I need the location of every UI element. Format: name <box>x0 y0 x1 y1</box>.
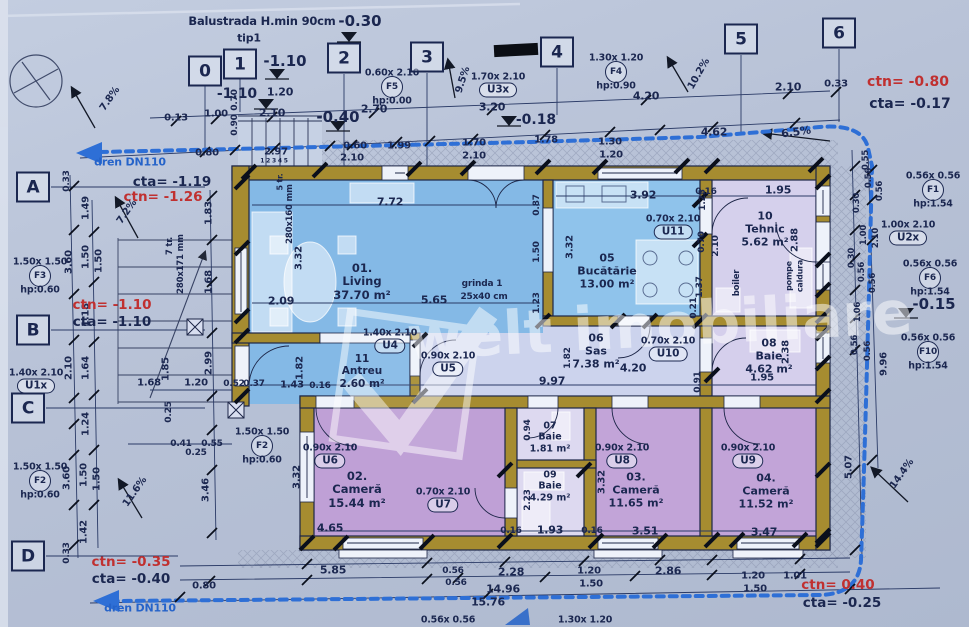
dim-label: 1.20 <box>577 566 601 577</box>
dim-label: 0.16 <box>581 526 602 536</box>
door-tag: U11 <box>654 225 693 240</box>
dim-label: 0.21 <box>689 297 699 318</box>
dim-label: 2.10 <box>462 151 486 162</box>
window-hp-label: hp:0.60 <box>20 285 59 296</box>
dim-label: 1.83 <box>204 201 215 225</box>
note-label: 280x160 mm <box>285 184 295 244</box>
slope-label: 7.2% <box>115 198 139 226</box>
room-number: 01. <box>352 261 372 275</box>
grid-column-marker: 6 <box>822 18 856 49</box>
dim-label: 5.85 <box>320 564 346 577</box>
level-label: cta= -0.40 <box>92 571 171 587</box>
dim-label: 4.65 <box>317 522 343 535</box>
dim-label: 1.00 <box>204 109 228 120</box>
door-size-label: 0.90x 2.10 <box>303 443 357 454</box>
level-label: -0.18 <box>516 112 556 128</box>
dim-label: 0.16 <box>309 381 330 391</box>
dim-label: 0.56 <box>857 262 867 282</box>
dim-label: 2.09 <box>268 295 294 308</box>
dim-label: 0.33 <box>824 79 848 90</box>
dim-label: 0.56 <box>863 341 873 361</box>
dim-label: 0.56 <box>875 181 885 201</box>
dim-label: 0.33 <box>62 542 72 563</box>
dim-label: 7.72 <box>377 196 403 209</box>
dim-label: 1.99 <box>387 141 411 152</box>
grid-column-marker: 4 <box>540 37 574 68</box>
dim-label: 0.56 <box>850 335 860 355</box>
room-number: 07 <box>543 420 556 431</box>
level-label: -0.15 <box>912 295 955 313</box>
dim-label: 1.78 <box>534 135 558 146</box>
dim-label: 1.24 <box>81 412 92 436</box>
slope-label: 11.6% <box>121 475 149 509</box>
dim-label: 2.10 <box>871 228 881 248</box>
dim-label: 1.50 <box>92 467 103 491</box>
door-size-label: 0.70x 2.10 <box>646 214 700 225</box>
level-label: cta= -0.25 <box>803 595 882 611</box>
slope-label: 6.5% <box>780 123 811 140</box>
slope-label: 9.5% <box>454 65 473 94</box>
room-number: 09 <box>543 469 556 480</box>
dim-label: 2.10 <box>259 107 285 120</box>
slope-label: 10.2% <box>686 57 712 92</box>
dim-label: 0.33 <box>62 170 72 191</box>
dim-label: 1.37 <box>695 276 705 297</box>
dim-label: 0.16 <box>500 526 521 536</box>
door-size-label: 1.70x 2.10 <box>471 72 525 83</box>
dim-label: 1.95 <box>765 184 791 197</box>
dim-label: 1.68 <box>204 270 215 294</box>
room-name: Living <box>342 274 381 288</box>
dim-label: 2.10 <box>711 235 721 256</box>
dim-label: 1.50 <box>743 584 767 595</box>
room-name: Sas <box>585 345 607 358</box>
dim-label: 1.82 <box>295 356 306 380</box>
window-hp-label: hp:0.60 <box>242 455 281 466</box>
dim-label: 3.51 <box>632 525 658 538</box>
room-number: 08 <box>761 337 776 350</box>
dim-label: 3.46 <box>201 478 212 502</box>
dim-label: 4.62 <box>701 126 727 139</box>
dim-label: 0.13 <box>164 113 188 124</box>
dim-label: 4.20 <box>620 362 646 375</box>
note-label: 5 tr. <box>276 173 285 190</box>
room-number: 05 <box>599 252 614 265</box>
room-area: 11.65 m² <box>609 497 664 510</box>
dim-label: 0.56 <box>868 273 878 293</box>
window-hp-label: hp:1.54 <box>913 199 952 210</box>
level-label: -1.10 <box>217 86 257 102</box>
dim-label: 1.68 <box>137 378 161 389</box>
door-tag: U4 <box>374 339 405 354</box>
dim-label: 0.90 <box>230 114 240 135</box>
room-name: Cameră <box>742 485 789 498</box>
room-area: 1.81 m² <box>530 443 571 454</box>
dim-label: 0.56 <box>864 168 874 188</box>
room-name: Bucătărie <box>577 265 637 278</box>
grid-row-marker: C <box>11 393 45 424</box>
dim-label: 0.80 <box>195 148 219 159</box>
door-tag: U9 <box>732 454 763 469</box>
dim-label: 1.50 <box>81 245 92 269</box>
note-label: dren DN110 <box>104 602 176 615</box>
grid-row-marker: B <box>16 315 50 346</box>
door-size-label: 1.00x 2.10 <box>881 220 935 231</box>
room-number: 10 <box>757 210 772 223</box>
note-label: 1 2 3 4 5 <box>260 158 287 165</box>
dim-label: 0.30 <box>847 248 857 268</box>
grid-column-marker: 2 <box>327 43 361 74</box>
dim-label: 1.85 <box>161 357 172 381</box>
dim-label: 1.20 <box>599 150 623 161</box>
dim-label: 1.20 <box>184 378 208 389</box>
annotation-layer: 0.131.001.202.102.700.802.970.602.101.99… <box>0 0 969 627</box>
room-name: Antreu <box>342 365 382 377</box>
note-label: boiler <box>732 270 742 297</box>
window-hp-label: hp:0.60 <box>20 490 59 501</box>
room-number: 06 <box>588 332 603 345</box>
room-name: Tehnic <box>745 223 784 236</box>
room-area: 4.29 m² <box>530 492 571 503</box>
door-tag: U5 <box>432 362 463 377</box>
dim-label: 14.96 <box>486 583 520 596</box>
room-name: Baie <box>755 350 782 363</box>
note-label: dren DN110 <box>94 156 166 169</box>
note-label: 280x171 mm <box>176 234 186 294</box>
window-hp-label: hp:1.54 <box>910 287 949 298</box>
dim-label: 2.10 <box>64 356 75 380</box>
room-number: 03. <box>626 471 646 484</box>
level-label: cta= -1.10 <box>73 314 152 330</box>
dim-label: 5.65 <box>421 294 447 307</box>
dim-label: 1.64 <box>81 356 92 380</box>
slope-label: 7.8% <box>98 85 122 113</box>
dim-label: 0.60 <box>343 141 367 152</box>
door-tag: U2x <box>889 231 927 246</box>
dim-label: 1.30 <box>598 137 622 148</box>
dim-label: 4.20 <box>633 90 659 103</box>
dim-label: 1.50 <box>532 241 542 262</box>
level-label: cta= -1.19 <box>133 174 212 190</box>
room-area: 11.52 m² <box>739 498 794 511</box>
dim-label: 0.87 <box>532 194 542 215</box>
grid-row-marker: A <box>16 172 50 203</box>
room-number: 11 <box>355 353 370 365</box>
grid-column-marker: 1 <box>223 49 257 80</box>
dim-label: 1.49 <box>81 196 92 220</box>
dim-label: 1.50 <box>94 249 105 273</box>
door-size-label: 0.70x 2.10 <box>416 487 470 498</box>
dim-label: 0.37 <box>243 379 264 389</box>
room-area: 13.00 m² <box>580 278 635 291</box>
dim-label: 1.42 <box>79 520 90 544</box>
door-tag: U3x <box>479 83 517 98</box>
grid-column-marker: 3 <box>410 42 444 73</box>
level-label: ctn= -1.10 <box>73 297 152 313</box>
dim-label: 2.10 <box>775 81 801 94</box>
room-area: 4.62 m² <box>745 363 792 376</box>
dim-label: 3.20 <box>479 101 505 114</box>
note-label: 7 tr. <box>165 237 175 255</box>
dim-label: 1.70 <box>462 138 486 149</box>
dim-label: 3.32 <box>597 470 608 494</box>
dim-label: 3.32 <box>294 246 305 270</box>
door-tag: U10 <box>649 347 688 362</box>
floor-plan-page: welt imobiliare 0.131.001.202.102.700.80… <box>0 0 969 627</box>
dim-label: 0.80 <box>192 581 216 592</box>
dim-label: 1.50 <box>79 463 90 487</box>
level-label: ctn= -0.80 <box>867 74 949 90</box>
dim-label: 0.94 <box>523 419 533 440</box>
grid-row-marker: D <box>11 541 45 572</box>
slope-label: 14.4% <box>888 457 916 491</box>
room-area: 15.44 m² <box>328 496 385 510</box>
dim-label: 2.99 <box>204 351 215 375</box>
dim-label: 0.30 <box>852 193 862 213</box>
level-label: ctn= -0.35 <box>92 554 171 570</box>
room-area: 2.60 m² <box>339 378 384 390</box>
room-name: Cameră <box>332 482 381 496</box>
door-tag: U6 <box>314 454 345 469</box>
dim-label: 1.23 <box>532 292 542 313</box>
door-size-label: 1.40x 2.10 <box>9 368 63 379</box>
door-size-label: 0.90x 2.10 <box>421 351 475 362</box>
room-name: Baie <box>538 481 561 492</box>
door-size-label: 1.40x 2.10 <box>363 328 417 339</box>
window-hp-label: hp:0.90 <box>596 81 635 92</box>
door-tag: U8 <box>606 454 637 469</box>
room-number: 02. <box>347 469 367 483</box>
window-hp-label: hp:0.00 <box>372 96 411 107</box>
room-name: Cameră <box>612 484 659 497</box>
dim-label: 3.47 <box>751 526 777 539</box>
room-name: Baie <box>538 432 561 443</box>
dim-label: 2.86 <box>655 565 681 578</box>
dim-label: 0.70 <box>697 231 707 252</box>
door-size-label: 0.90x 2.10 <box>595 443 649 454</box>
dim-label: 15.76 <box>471 596 505 609</box>
grid-column-marker: 0 <box>188 56 222 87</box>
level-label: -0.40 <box>316 108 359 126</box>
dim-label: 1.25 <box>698 189 708 210</box>
dim-label: 1.50 <box>579 579 603 590</box>
door-size-label: 0.70x 2.10 <box>641 336 695 347</box>
level-label: ctn= 0.40 <box>801 577 874 593</box>
dim-label: 2.97 <box>264 147 288 158</box>
note-label: pompe <box>785 261 794 291</box>
dim-label: 1.93 <box>537 524 563 537</box>
dim-label: 1.20 <box>267 86 293 99</box>
note-label: grinda 1 <box>462 279 503 289</box>
dim-label: 0.56 <box>442 566 463 576</box>
dim-label: 1.30x 1.20 <box>558 615 612 626</box>
dim-label: 0.56 <box>445 578 466 588</box>
dim-label: 0.25 <box>164 401 174 422</box>
note-label: Balustrada H.min 90cm <box>188 14 335 28</box>
dim-label: 2.10 <box>340 153 364 164</box>
room-number: 04. <box>756 472 776 485</box>
dim-label: 0.25 <box>185 448 206 458</box>
level-label: -0.30 <box>338 12 381 30</box>
dim-label: 9.96 <box>879 352 890 376</box>
door-tag: U7 <box>427 498 458 513</box>
dim-label: 9.97 <box>539 375 565 388</box>
window-hp-label: hp:1.54 <box>908 361 947 372</box>
door-size-label: 0.90x 2.10 <box>721 443 775 454</box>
dim-label: 2.28 <box>498 566 524 579</box>
room-area: 5.62 m² <box>741 236 788 249</box>
dim-label: 1.06 <box>853 302 863 322</box>
level-label: cta= -0.17 <box>869 96 950 112</box>
dim-label: 3.32 <box>292 465 303 489</box>
dim-label: 1.00 <box>859 225 869 245</box>
grid-column-marker: 5 <box>724 24 758 55</box>
dim-label: 1.43 <box>280 380 304 391</box>
level-label: -1.10 <box>263 52 306 70</box>
dim-label: 0.52 <box>223 379 244 389</box>
note-label: 25x40 cm <box>460 292 507 302</box>
room-area: 37.70 m² <box>333 288 390 302</box>
dim-label: 2.88 <box>790 228 801 252</box>
dim-label: 1.20 <box>741 571 765 582</box>
door-tag: U1x <box>17 379 55 394</box>
dim-label: 0.56x 0.56 <box>421 615 475 626</box>
dim-label: 3.92 <box>630 189 656 202</box>
note-label: tip1 <box>237 32 261 45</box>
dim-label: 0.91 <box>693 371 703 392</box>
dim-label: 5.07 <box>844 455 855 479</box>
room-area: 7.38 m² <box>572 358 619 371</box>
note-label: caldura <box>796 260 805 292</box>
dim-label: 3.32 <box>565 235 576 259</box>
